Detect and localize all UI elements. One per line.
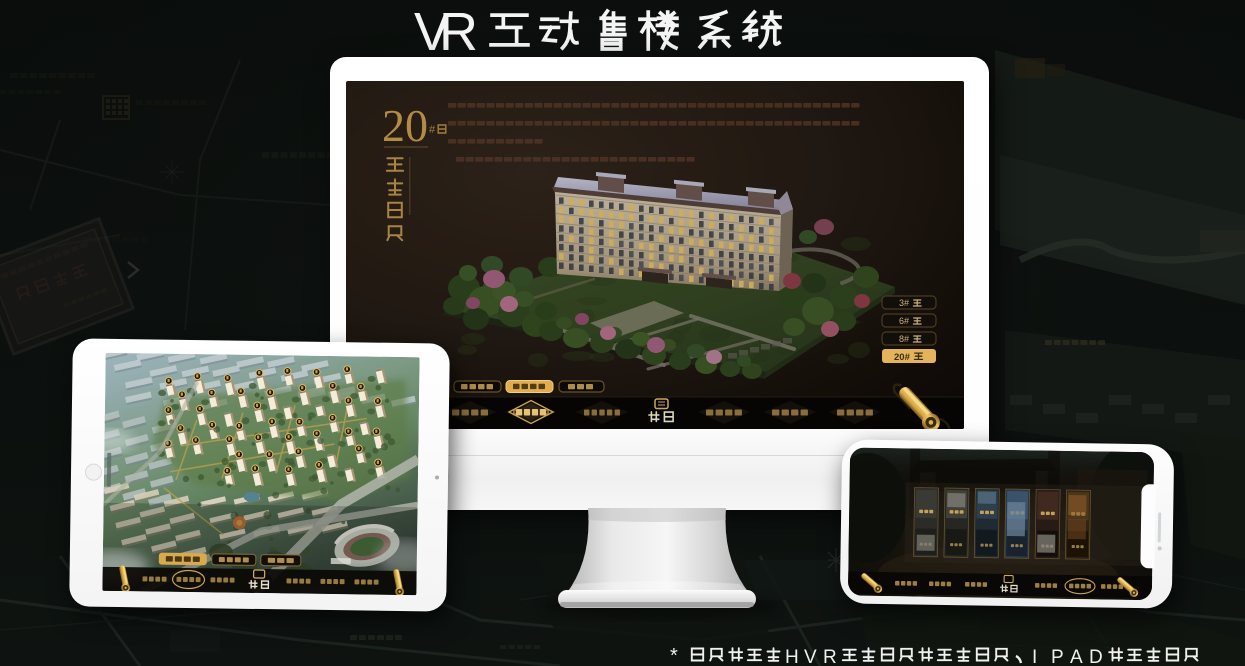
svg-text:R: R xyxy=(823,647,837,666)
svg-text:P: P xyxy=(1051,647,1064,666)
svg-text:H: H xyxy=(785,647,799,666)
svg-text:A: A xyxy=(1070,647,1083,666)
svg-text:*: * xyxy=(670,645,678,666)
svg-text:I: I xyxy=(1032,647,1037,666)
svg-text:20#: 20# xyxy=(894,352,911,363)
svg-text:D: D xyxy=(1089,647,1103,666)
svg-text:VR: VR xyxy=(414,2,478,60)
svg-text:V: V xyxy=(804,647,817,666)
svg-text:3#: 3# xyxy=(899,298,909,308)
svg-text:8#: 8# xyxy=(899,334,909,344)
svg-text:6#: 6# xyxy=(899,316,909,326)
